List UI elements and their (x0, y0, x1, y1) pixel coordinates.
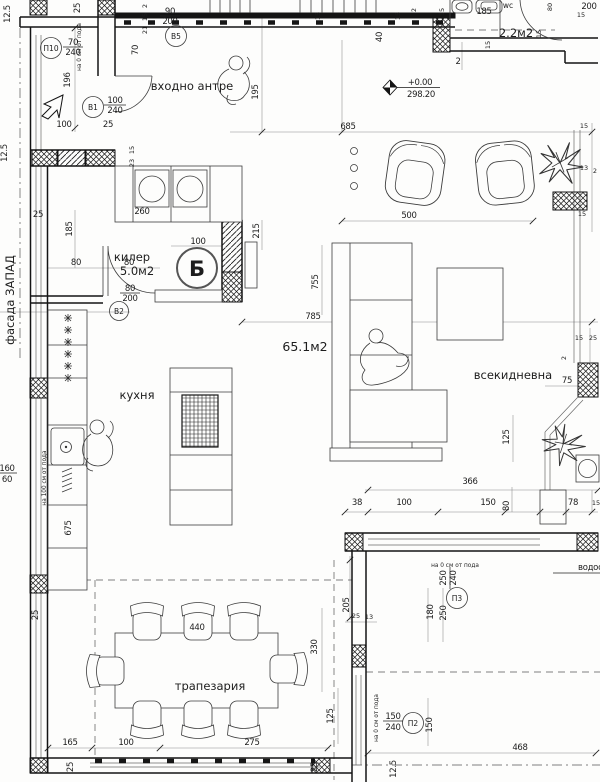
dim: 15 (314, 12, 322, 20)
floor-note-bottom: на 0 см от пода (374, 694, 380, 742)
dim: 80 (502, 501, 512, 511)
marker-p2-den: 240 (385, 723, 400, 733)
dimension-lines (0, 18, 598, 753)
marker-b2: B2 80 200 (110, 284, 141, 321)
hob (182, 395, 218, 447)
dim: 75 (562, 376, 572, 386)
dim: 755 (311, 274, 321, 289)
marker-section-b: Б (177, 248, 217, 288)
dim: 78 (568, 498, 578, 508)
window-size-num: 160 (0, 464, 15, 474)
room-area-wc: 2.2м2 (499, 26, 533, 40)
elevation-absolute: 298.20 (407, 90, 435, 100)
room-label-kitchen: кухня (120, 388, 155, 402)
dim: 15 (141, 13, 149, 21)
marker-p2-id: П2 (408, 719, 419, 728)
dim: 275 (244, 738, 259, 748)
dim: 25 (33, 210, 43, 220)
marker-p2-num: 150 (385, 712, 400, 722)
dim: 2 (593, 167, 597, 175)
dim: 185 (476, 7, 491, 17)
dim: 15 (128, 146, 136, 154)
dim: 15 (577, 11, 585, 19)
marker-b5-id: B5 (171, 32, 181, 41)
dim: 100 (396, 498, 411, 508)
floor-note-kitchen-window: на 100 см от пода (42, 450, 48, 506)
dim: 38 (352, 498, 362, 508)
dim: 100 (56, 120, 71, 130)
room-label-entry: входно антре (151, 79, 233, 93)
marker-b2-den: 200 (122, 294, 137, 304)
room-label-living: всекидневна (474, 368, 552, 382)
dim: 25 (66, 762, 76, 772)
dim: 2 (141, 4, 149, 8)
dim: 468 (512, 743, 527, 753)
dim: 500 (401, 211, 416, 221)
dining-table (115, 633, 278, 708)
dim: 15 (535, 30, 543, 38)
kitchen-counter (48, 310, 87, 590)
marker-p3-id: П3 (452, 594, 463, 603)
dim: 70 (131, 45, 141, 55)
armchair (383, 138, 447, 207)
dim: 80 (124, 258, 134, 268)
dim: 12.5 (3, 5, 13, 23)
marker-b1: B1 100 240 (83, 96, 127, 118)
drainpipe-label: водосточна (578, 563, 600, 573)
dim: 15 (592, 499, 600, 507)
window-size-den: 60 (2, 475, 12, 485)
dim: 205 (342, 597, 352, 612)
dim: 2 (560, 356, 568, 360)
dim: 12.5 (389, 760, 399, 778)
dim: 195 (251, 84, 261, 99)
dim: 685 (340, 122, 355, 132)
dim: 180 (426, 604, 436, 619)
dim: 125 (502, 429, 512, 444)
dim: 13 (580, 164, 588, 172)
dim: 23 (128, 159, 136, 167)
dim: 100 (118, 738, 133, 748)
dim: 165 (62, 738, 77, 748)
room-label-wc: wc (503, 1, 513, 10)
facade-west-label: фасада ЗАПАД (3, 255, 17, 345)
dim: 12.5 (0, 144, 10, 162)
dim: 260 (134, 207, 149, 217)
room-label-dining: трапезария (175, 679, 246, 693)
annotation-labels: +0.00 298.20 фасада ЗАПАД на 0 см от под… (0, 23, 600, 742)
dim: 185 (65, 221, 75, 236)
dim: 25 (73, 3, 83, 13)
dim: 366 (462, 477, 477, 487)
marker-b2-id: B2 (114, 307, 124, 316)
dim: 2 (455, 57, 460, 67)
section-letter: Б (189, 257, 205, 281)
dim: 25 (103, 120, 113, 130)
kitchen-island (170, 368, 232, 525)
floor-note-entry: на 0 см от пода (77, 23, 83, 71)
dim: 13 (365, 613, 373, 621)
marker-b1-num: 100 (107, 96, 122, 106)
marker-b5-num: 90 (165, 7, 175, 17)
dim: 80 (71, 258, 81, 268)
dim: 330 (310, 639, 320, 654)
dim: 15 (394, 12, 402, 20)
dim: 15 (578, 210, 586, 218)
dim: 25 (31, 610, 41, 620)
radiator (540, 490, 566, 524)
dim: 675 (64, 520, 74, 535)
radiator (245, 242, 257, 288)
dim: 25 (589, 334, 597, 342)
dim: 785 (305, 312, 320, 322)
staircase (210, 0, 376, 13)
dim: 15 (484, 41, 492, 49)
floor-plan: П10 70 240 B5 90 200 B1 100 240 B2 80 20… (0, 0, 600, 782)
dim: 80 (546, 3, 554, 11)
column-box (576, 455, 599, 482)
sofa-side-table (330, 448, 442, 461)
dim: 125 (326, 708, 336, 723)
room-area-main: 65.1м2 (282, 339, 327, 354)
dim: 40 (375, 32, 385, 42)
armchair (474, 139, 536, 207)
marker-b2-num: 80 (125, 284, 135, 294)
floor-note-terrace: на 0 см от пода (431, 563, 479, 569)
dim: 25 (310, 762, 320, 772)
marker-p3-den: 240 (449, 570, 459, 585)
elevation-level: +0.00 (408, 78, 433, 88)
dim: 15 (580, 122, 588, 130)
marker-b1-id: B1 (88, 103, 98, 112)
dim: 100 (190, 237, 205, 247)
coffee-table (437, 268, 503, 340)
marker-p2: П2 150 240 (383, 712, 424, 734)
plant (540, 143, 583, 184)
dim: 150 (425, 717, 435, 732)
dim: 250 (439, 605, 449, 620)
dim: 196 (63, 72, 73, 87)
dim: 440 (189, 623, 204, 633)
dim: 150 (480, 498, 495, 508)
dim: 2 (410, 8, 418, 12)
entrance-arrow (42, 95, 63, 119)
dim: 15 (438, 8, 446, 16)
counter-shelf (155, 290, 222, 302)
marker-p10-id: П10 (43, 44, 58, 53)
marker-b5-den: 200 (162, 17, 177, 27)
marker-p3-num: 250 (439, 570, 449, 585)
dim: 25 (352, 612, 360, 620)
dim: 21 (141, 26, 149, 34)
dim: 15 (575, 334, 583, 342)
marker-b1-den: 240 (107, 106, 122, 116)
sofa-chaise (350, 390, 447, 442)
dim: 215 (252, 223, 262, 238)
